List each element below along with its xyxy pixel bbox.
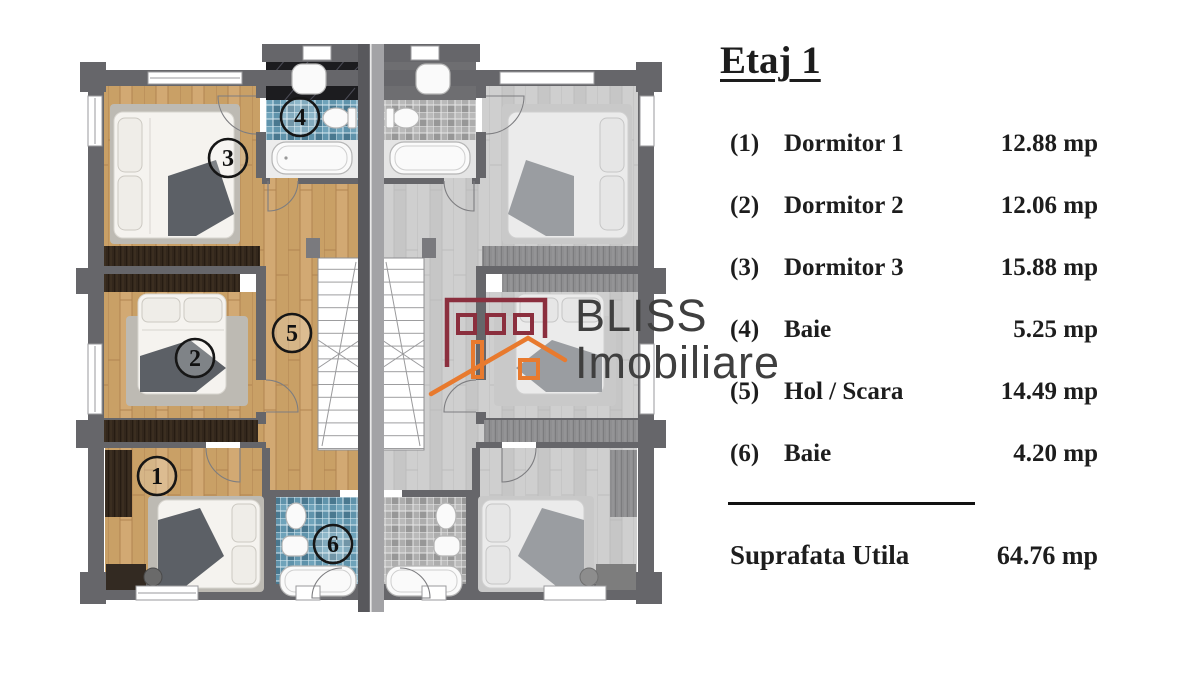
room-name: Dormitor 3	[784, 254, 973, 282]
room-row: (2) Dormitor 2 12.06 mp	[730, 192, 1098, 217]
exterior-wall	[638, 70, 654, 600]
wall	[256, 86, 266, 98]
room-list: (1) Dormitor 1 12.88 mp (2) Dormitor 2 1…	[730, 130, 1098, 502]
room-area: 12.88 mp	[973, 130, 1098, 158]
marker-2: 2	[189, 346, 201, 372]
wall-bump	[76, 268, 90, 294]
room-row: (3) Dormitor 3 15.88 mp	[730, 254, 1098, 279]
wall	[262, 497, 276, 600]
window	[411, 46, 439, 60]
wall	[536, 442, 644, 448]
wall-bump	[636, 572, 662, 604]
wardrobe	[482, 246, 638, 266]
marker-3: 3	[222, 146, 234, 172]
chair	[580, 568, 598, 586]
wardrobe	[104, 420, 258, 442]
bed	[502, 104, 632, 244]
toilet	[393, 108, 419, 128]
marker-5: 5	[286, 321, 298, 347]
room-row: (1) Dormitor 1 12.88 mp	[730, 130, 1098, 155]
room-number: (4)	[730, 316, 784, 344]
unit-left	[76, 44, 360, 604]
total-row: Suprafata Utila 64.76 mp	[730, 540, 1098, 571]
sink	[282, 536, 308, 556]
wall	[476, 274, 486, 380]
marker-4: 4	[294, 105, 306, 131]
room-row: (5) Hol / Scara 14.49 mp	[730, 378, 1098, 403]
page-title: Etaj 1	[720, 38, 821, 83]
wall	[262, 178, 270, 184]
wardrobe	[502, 274, 638, 292]
wall	[476, 266, 644, 274]
floorplan-page: { "title": "Etaj 1", "plan": { "markers"…	[0, 0, 1200, 693]
window	[640, 344, 654, 414]
room-number: (6)	[730, 440, 784, 468]
unit-right-mirrored	[382, 44, 666, 604]
toilet	[436, 503, 456, 529]
wall-bump	[652, 268, 666, 294]
room-name: Hol / Scara	[784, 378, 973, 406]
toilet	[323, 108, 349, 128]
total-label: Suprafata Utila	[730, 540, 997, 571]
wall	[98, 266, 266, 274]
wall	[98, 442, 206, 448]
window	[303, 46, 331, 60]
wall	[256, 132, 266, 178]
room-area: 14.49 mp	[973, 378, 1098, 406]
room-row: (6) Baie 4.20 mp	[730, 440, 1098, 465]
toilet	[286, 503, 306, 529]
wall	[476, 86, 486, 98]
sink	[416, 64, 450, 94]
room-area: 5.25 mp	[973, 316, 1098, 344]
wall-bump	[636, 62, 662, 92]
room-name: Baie	[784, 440, 973, 468]
room-number: (1)	[730, 130, 784, 158]
wall	[472, 178, 480, 184]
floor-plan-drawing: 1 2 3 4 5 6	[0, 0, 700, 660]
wall	[476, 442, 502, 448]
room-area: 4.20 mp	[973, 440, 1098, 468]
floor-plan: 1 2 3 4 5 6	[0, 0, 700, 660]
closet	[105, 450, 132, 517]
wall	[256, 412, 266, 418]
wall	[402, 490, 480, 497]
wardrobe	[104, 274, 240, 292]
wall-bump	[652, 420, 666, 448]
wall	[382, 178, 444, 184]
wall	[466, 497, 480, 600]
wall	[298, 178, 360, 184]
wall-bump	[80, 572, 106, 604]
room-row: (4) Baie 5.25 mp	[730, 316, 1098, 341]
sink	[292, 64, 326, 94]
wardrobe	[104, 246, 260, 266]
stair-post	[422, 238, 436, 258]
wall	[256, 274, 266, 380]
room-name: Baie	[784, 316, 973, 344]
marker-1: 1	[151, 464, 163, 490]
wall-bump	[76, 420, 90, 448]
room-area: 12.06 mp	[973, 192, 1098, 220]
wall	[472, 448, 480, 490]
room-name: Dormitor 1	[784, 130, 973, 158]
bed	[478, 496, 594, 592]
exterior-wall-left	[88, 70, 104, 600]
window	[544, 586, 606, 600]
marker-6: 6	[327, 532, 339, 558]
room-number: (2)	[730, 192, 784, 220]
window	[640, 96, 654, 146]
party-wall	[358, 44, 384, 612]
wardrobe	[484, 420, 638, 442]
chair	[144, 568, 162, 586]
bed-bedroom-1	[148, 496, 264, 592]
room-area: 15.88 mp	[973, 254, 1098, 282]
wall	[476, 412, 486, 418]
wall	[476, 132, 486, 178]
wall	[262, 448, 270, 490]
room-number: (5)	[730, 378, 784, 406]
closet	[610, 450, 637, 517]
sink	[434, 536, 460, 556]
toilet-tank	[348, 108, 356, 128]
toilet-tank	[386, 108, 394, 128]
stair-post	[306, 238, 320, 258]
room-number: (3)	[730, 254, 784, 282]
total-area: 64.76 mp	[997, 541, 1098, 571]
window	[500, 72, 594, 84]
room-name: Dormitor 2	[784, 192, 973, 220]
wall-bump	[80, 62, 106, 92]
wall	[262, 490, 340, 497]
wall	[240, 442, 266, 448]
total-divider	[728, 502, 975, 505]
